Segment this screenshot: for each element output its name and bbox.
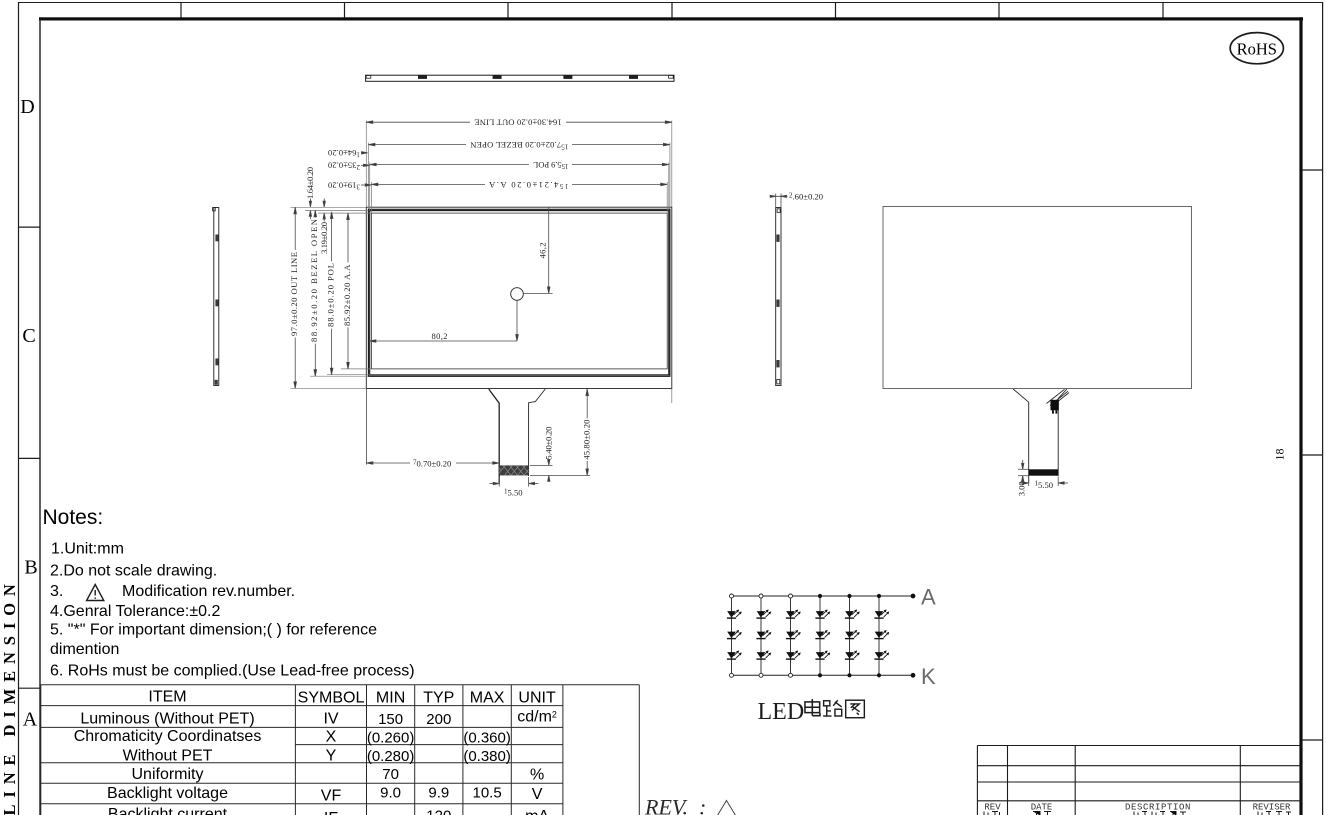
svg-text:V: V — [532, 786, 543, 803]
svg-text:15.50: 15.50 — [1035, 480, 1054, 490]
svg-text:DESCRIPTION: DESCRIPTION — [1125, 803, 1191, 813]
svg-text:%: % — [530, 767, 544, 784]
svg-text:LINE DIMENSION: LINE DIMENSION — [0, 577, 19, 815]
svg-text:Backlight voltage: Backlight voltage — [107, 785, 228, 802]
svg-text:Luminous (Without PET): Luminous (Without PET) — [80, 711, 254, 728]
svg-text:4.Genral Tolerance:±0.2: 4.Genral Tolerance:±0.2 — [50, 603, 220, 620]
svg-text:3.19±0.20: 3.19±0.20 — [319, 222, 329, 254]
svg-text:9.9: 9.9 — [428, 785, 449, 802]
svg-text:Y: Y — [326, 747, 337, 764]
svg-text:REV. :: REV. : — [644, 795, 706, 815]
svg-text:Modification rev.number.: Modification rev.number. — [122, 583, 295, 600]
svg-text:1.64±0.20: 1.64±0.20 — [305, 167, 315, 199]
svg-text:(0.260): (0.260) — [367, 729, 415, 746]
svg-text:B: B — [24, 557, 37, 579]
svg-text:IV: IV — [323, 711, 338, 728]
svg-text:120: 120 — [426, 808, 451, 815]
svg-text:Without PET: Without PET — [123, 748, 213, 765]
svg-text:319±0.20: 319±0.20 — [328, 180, 360, 190]
svg-text:mA: mA — [525, 808, 549, 815]
svg-text:200: 200 — [426, 711, 451, 728]
svg-text:C: C — [22, 325, 35, 347]
svg-text:70.70±0.20: 70.70±0.20 — [413, 458, 451, 468]
svg-text:UNIT: UNIT — [518, 690, 556, 707]
svg-text:10.5: 10.5 — [472, 785, 501, 802]
svg-text:235±0.20: 235±0.20 — [328, 161, 360, 171]
svg-text:9.0: 9.0 — [380, 785, 401, 802]
svg-text:A: A — [23, 709, 38, 731]
svg-text:ITEM: ITEM — [148, 689, 186, 706]
svg-text:45.80±0.20: 45.80±0.20 — [581, 420, 591, 460]
svg-text:15.50: 15.50 — [504, 487, 523, 497]
svg-text:LED: LED — [758, 699, 805, 725]
svg-text:3.: 3. — [50, 583, 63, 600]
svg-text:REVISER: REVISER — [1253, 803, 1291, 813]
svg-text:70: 70 — [382, 766, 399, 783]
svg-text:150: 150 — [378, 711, 403, 728]
svg-text:80,2: 80,2 — [432, 331, 448, 341]
svg-text:Backlight current: Backlight current — [108, 806, 228, 815]
svg-text:1.Unit:mm: 1.Unit:mm — [51, 541, 124, 558]
svg-text:MIN: MIN — [376, 690, 405, 707]
svg-text:K: K — [921, 664, 936, 689]
svg-text:D: D — [20, 96, 34, 118]
svg-text:164±0.20: 164±0.20 — [328, 148, 360, 158]
svg-text:97.0±0.20 OUT LINE: 97.0±0.20 OUT LINE — [289, 252, 299, 336]
svg-text:2.Do not scale drawing.: 2.Do not scale drawing. — [50, 563, 217, 580]
svg-text:6. RoHs must be complied.(Use: 6. RoHs must be complied.(Use Lead-free … — [50, 663, 415, 680]
svg-text:IF: IF — [324, 810, 338, 815]
svg-text:(0.380): (0.380) — [463, 748, 511, 765]
svg-text:157.02±0.20 BEZEL OPEN: 157.02±0.20 BEZEL OPEN — [470, 140, 569, 150]
svg-text:88.0±0.20 POL: 88.0±0.20 POL — [325, 263, 335, 327]
svg-text:X: X — [326, 729, 337, 746]
svg-text:Chromaticity Coordinatses: Chromaticity Coordinatses — [74, 728, 262, 745]
svg-text:MAX: MAX — [470, 690, 505, 707]
svg-text:dimention: dimention — [50, 641, 119, 658]
svg-text:A: A — [921, 585, 936, 610]
svg-text:RoHS: RoHS — [1237, 39, 1277, 58]
svg-text:46,2: 46,2 — [537, 243, 547, 259]
svg-text:TYP: TYP — [423, 690, 454, 707]
svg-text:(0.360): (0.360) — [463, 729, 511, 746]
svg-text:Notes:: Notes: — [43, 506, 104, 529]
svg-text:VF: VF — [321, 788, 342, 805]
svg-text:cd/m2: cd/m2 — [517, 709, 557, 726]
svg-text:2.60±0.20: 2.60±0.20 — [789, 192, 823, 202]
svg-text:Uniformity: Uniformity — [131, 766, 203, 783]
svg-text:88.92±0.20 BEZEL OPEN: 88.92±0.20 BEZEL OPEN — [309, 218, 319, 342]
svg-text:5. "*" For important dimension: 5. "*" For important dimension;( ) for r… — [50, 622, 377, 639]
svg-text:164.30±0.20 OUT LINE: 164.30±0.20 OUT LINE — [474, 118, 561, 128]
svg-text:SYMBOL: SYMBOL — [298, 690, 365, 707]
svg-text:85.92±0.20 A.A: 85.92±0.20 A.A — [342, 264, 352, 326]
svg-text:18: 18 — [1273, 449, 1287, 461]
svg-text:5.40±0.20: 5.40±0.20 — [543, 427, 553, 460]
svg-text:(0.280): (0.280) — [367, 748, 415, 765]
